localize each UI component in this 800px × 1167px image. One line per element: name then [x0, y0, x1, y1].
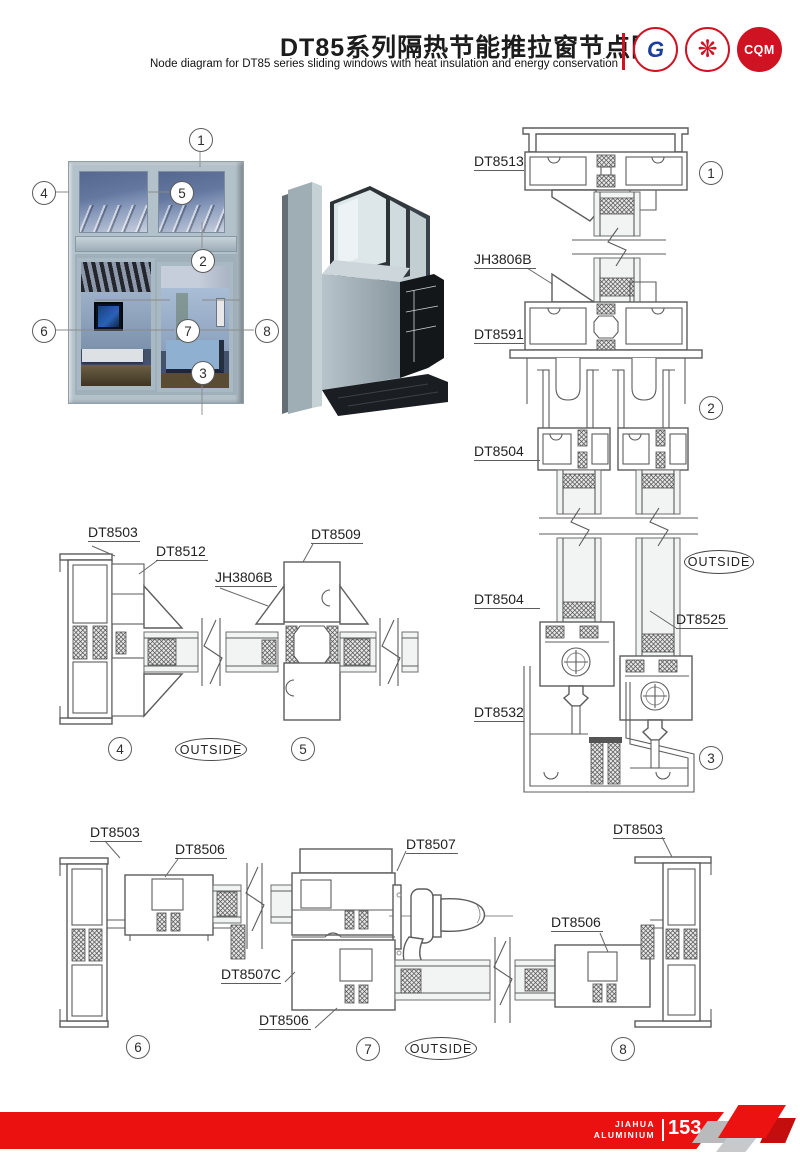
part-label-dt8591: DT8591 [474, 326, 524, 344]
outside-label-middle: OUTSIDE [175, 738, 247, 761]
node-callout-8: 8 [611, 1037, 635, 1061]
cqm-logo-icon: CQM [737, 27, 782, 72]
catalog-page: DT85系列隔热节能推拉窗节点图 Node diagram for DT85 s… [0, 0, 800, 1167]
node-callout-6: 6 [126, 1035, 150, 1059]
node-callout-7: 7 [356, 1037, 380, 1061]
outside-label-right: OUTSIDE [684, 550, 754, 574]
page-subtitle: Node diagram for DT85 series sliding win… [150, 58, 618, 70]
callout-2: 2 [191, 249, 215, 273]
part-label-jh3806b: JH3806B [474, 251, 536, 269]
footer-divider [662, 1119, 664, 1141]
brand-line-1: JIAHUA [575, 1119, 655, 1130]
logo-letter: G [647, 37, 664, 63]
sash-stile-DT8507C [292, 933, 395, 1010]
part-label-dt8504a: DT8504 [474, 443, 540, 461]
glass-strip-right [340, 618, 418, 686]
part-label-dt8525: DT8525 [676, 611, 728, 629]
jiahua-g-logo-icon: G [633, 27, 678, 72]
header-divider [622, 33, 625, 70]
part-label-dt8503: DT8503 [88, 524, 140, 542]
render-shapes [282, 182, 448, 416]
part-label-dt8509: DT8509 [311, 526, 363, 544]
logo-row: G ❋ CQM [633, 27, 782, 72]
callout-8: 8 [255, 319, 279, 343]
horizontal-section-45-svg [40, 520, 420, 770]
part-label-dt8506-b1: DT8506 [175, 841, 227, 859]
callout-4: 4 [32, 181, 56, 205]
part-label-dt8507c: DT8507C [221, 966, 281, 984]
horizontal-section-678-svg [45, 825, 765, 1060]
brand-line-2: ALUMINIUM [575, 1130, 655, 1141]
node-callout-1: 1 [699, 161, 723, 185]
cqm-letters: CQM [744, 43, 775, 57]
part-label-dt8503-b1: DT8503 [90, 824, 142, 842]
node-callout-2: 2 [699, 396, 723, 420]
callout-7: 7 [176, 319, 200, 343]
part-label-dt8504b: DT8504 [474, 591, 540, 609]
part-label-dt8506-b2: DT8506 [551, 914, 603, 932]
sash-stile-DT8506-left [125, 875, 213, 941]
node-callout-4: 4 [108, 737, 132, 761]
node-callout-3: 3 [699, 746, 723, 770]
outside-label-bottom: OUTSIDE [405, 1037, 477, 1060]
seal-glyph: ❋ [697, 38, 717, 62]
vertical-section-svg [460, 122, 800, 802]
part-label-dt8507: DT8507 [406, 836, 458, 854]
page-number: 153 [668, 1117, 701, 1140]
part-label-dt8503-b2: DT8503 [613, 821, 665, 839]
part-label-dt8532: DT8532 [474, 704, 524, 722]
certification-seal-icon: ❋ [685, 27, 730, 72]
profile-3d-render [278, 162, 468, 418]
node-callout-5: 5 [291, 737, 315, 761]
part-label-dt8513: DT8513 [474, 153, 524, 171]
part-label-jh3806b2: JH3806B [215, 569, 277, 587]
callout-5: 5 [170, 181, 194, 205]
callout-6: 6 [32, 319, 56, 343]
callout-3: 3 [191, 361, 215, 385]
glass-strip-1 [213, 863, 295, 949]
footer-brand: JIAHUA ALUMINIUM [575, 1119, 655, 1141]
sash-stile-DT8506-right [555, 945, 650, 1007]
part-label-dt8512: DT8512 [156, 543, 208, 561]
callout-1: 1 [189, 128, 213, 152]
photo-callout-lines-svg [20, 125, 290, 425]
part-label-dt8506-b3: DT8506 [259, 1012, 311, 1030]
